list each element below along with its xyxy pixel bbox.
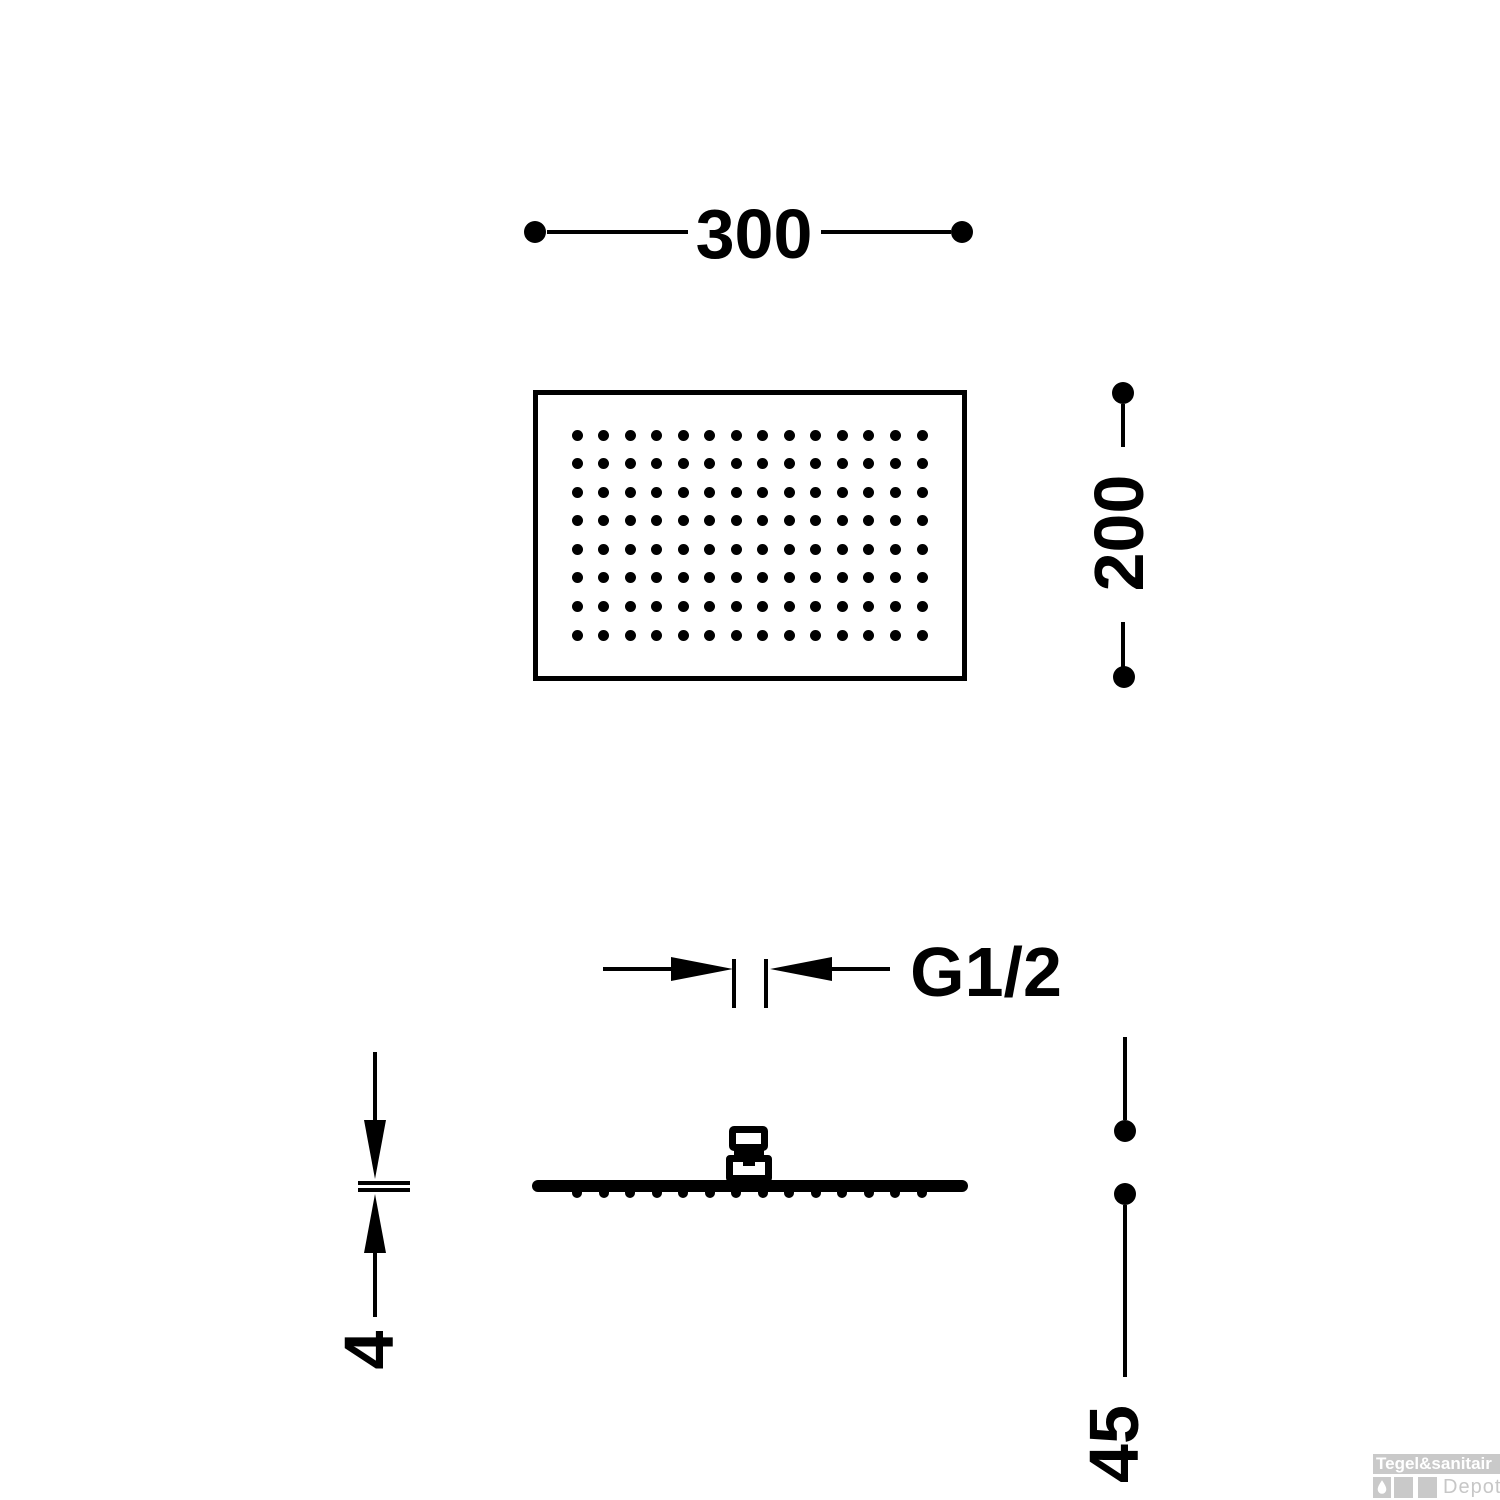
dimension-line [1123,1205,1127,1377]
dimension-width-label: 300 [696,199,813,269]
dimension-line [373,1052,377,1122]
dimension-endpoint-dot [524,221,546,243]
dimension-endpoint-dot [1114,1183,1136,1205]
dimension-endpoint-dot [1113,666,1135,688]
watermark-brand-box: Tegel&sanitair [1373,1454,1500,1474]
shower-head-technical-drawing: 300 200 G1/2 4 [0,0,1500,1500]
dimension-line [826,967,890,971]
arrow-left-icon [770,957,832,981]
watermark-brand-text: Tegel&sanitair [1376,1454,1492,1473]
dimension-line [1121,622,1125,667]
connector-notch [743,1158,755,1166]
plate-surface-line [358,1188,410,1192]
dimension-line [1121,404,1125,447]
connector-top-box [729,1126,768,1151]
dimension-line [1123,1037,1127,1120]
dimension-line [373,1251,377,1317]
dimension-line [821,230,951,234]
watermark-square [1418,1477,1437,1498]
dimension-thread-label: G1/2 [910,937,1062,1007]
dimension-endpoint-dot [1112,382,1134,404]
extension-tick [732,959,736,1008]
dimension-endpoint-dot [951,221,973,243]
watermark-drop-square [1373,1477,1391,1498]
dimension-line [547,230,688,234]
dimension-thickness-label: 4 [334,1331,404,1370]
arrow-right-icon [671,957,733,981]
arrow-up-icon [364,1194,386,1253]
watermark-sub-text: Depot [1443,1477,1500,1498]
arrow-down-icon [364,1120,386,1179]
extension-tick [764,959,768,1008]
dimension-endpoint-dot [1114,1120,1136,1142]
dimension-height-label: 200 [1084,475,1154,592]
shower-plate-side-profile [532,1180,968,1192]
shower-plate-top-view [533,390,967,681]
watermark-square [1394,1477,1413,1498]
water-drop-icon [1373,1477,1391,1498]
dimension-depth-label: 45 [1079,1405,1149,1483]
plate-surface-line [358,1181,410,1185]
